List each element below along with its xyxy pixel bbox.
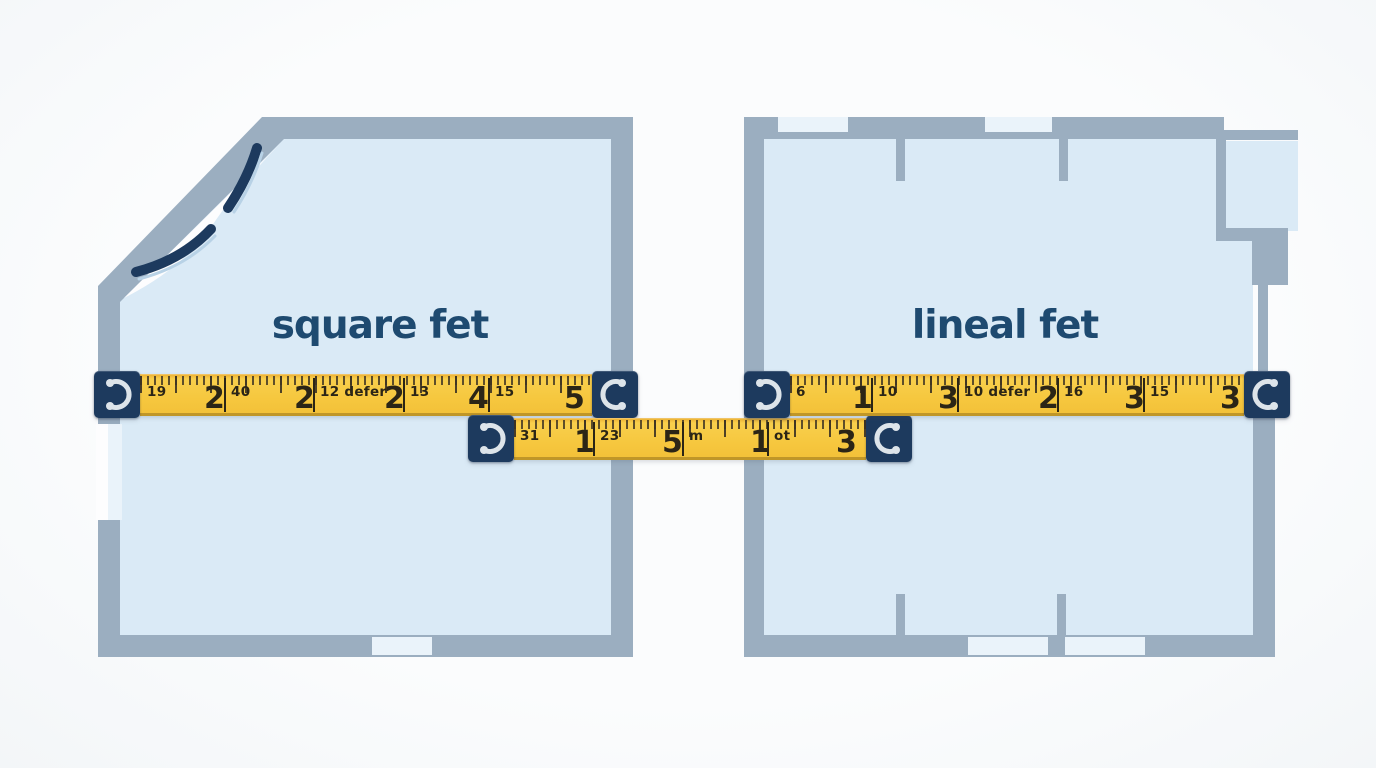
tape-mark: 6: [796, 386, 806, 400]
measuring-tape-right: 6110310 defer2163153: [744, 374, 1290, 416]
tape-hook-right-icon: [1244, 371, 1290, 418]
tape-mark: 2: [204, 384, 225, 414]
tape-body: 311235m1ot3: [514, 418, 866, 460]
tape-mark: 10: [878, 386, 897, 400]
tape-mark: 1: [852, 384, 873, 414]
tape-mark: 23: [600, 430, 619, 444]
tape-mark: 13: [410, 386, 429, 400]
tape-body: 19240212 defer2134155: [140, 374, 592, 416]
tape-mark: 10 defer: [964, 386, 1030, 400]
right-room-label: lineal fet: [845, 303, 1165, 348]
wall-stub: [1059, 139, 1068, 181]
tape-mark: ot: [774, 430, 790, 444]
measuring-tape-left: 19240212 defer2134155: [94, 374, 638, 416]
bottom-wall-opening: [1065, 637, 1145, 655]
tape-mark: 5: [564, 384, 585, 414]
tape-hook-right-icon: [592, 371, 638, 418]
tape-mark: m: [689, 430, 703, 444]
tape-hook-right-icon: [866, 415, 912, 462]
tape-mark: 3: [938, 384, 959, 414]
wall-stub: [1057, 594, 1066, 635]
wall-stub: [896, 139, 905, 181]
tape-mark: 2: [384, 384, 405, 414]
tape-mark: 1: [574, 428, 595, 458]
tape-mark: 19: [147, 386, 166, 400]
tape-hook-left-icon: [744, 371, 790, 418]
tape-mark: 2: [294, 384, 315, 414]
bottom-wall-opening: [968, 637, 1048, 655]
bottom-wall-opening: [372, 637, 432, 655]
tape-mark: 12 defer: [320, 386, 386, 400]
tape-mark: 16: [1064, 386, 1083, 400]
wall-stub: [896, 594, 905, 635]
tape-mark: 2: [1038, 384, 1059, 414]
top-wall-opening: [985, 117, 1052, 132]
tape-mark: 3: [1220, 384, 1241, 414]
tape-mark: 31: [520, 430, 539, 444]
tape-hook-left-icon: [94, 371, 140, 418]
tape-mark: 15: [1150, 386, 1169, 400]
left-wall-window: [96, 424, 122, 520]
left-room-label: square fet: [220, 303, 540, 348]
top-wall-opening: [778, 117, 848, 132]
tape-mark: 40: [231, 386, 250, 400]
floor-plan-illustration: square fet lineal fet 19240212 defer2134…: [0, 0, 1376, 768]
tape-mark: 3: [836, 428, 857, 458]
tape-mark: 15: [495, 386, 514, 400]
tape-body: 6110310 defer2163153: [790, 374, 1244, 416]
tape-hook-left-icon: [468, 415, 514, 462]
measuring-tape-center: 311235m1ot3: [468, 418, 912, 460]
tape-mark: 5: [662, 428, 683, 458]
tape-mark: 3: [1124, 384, 1145, 414]
tape-mark: 4: [468, 384, 489, 414]
